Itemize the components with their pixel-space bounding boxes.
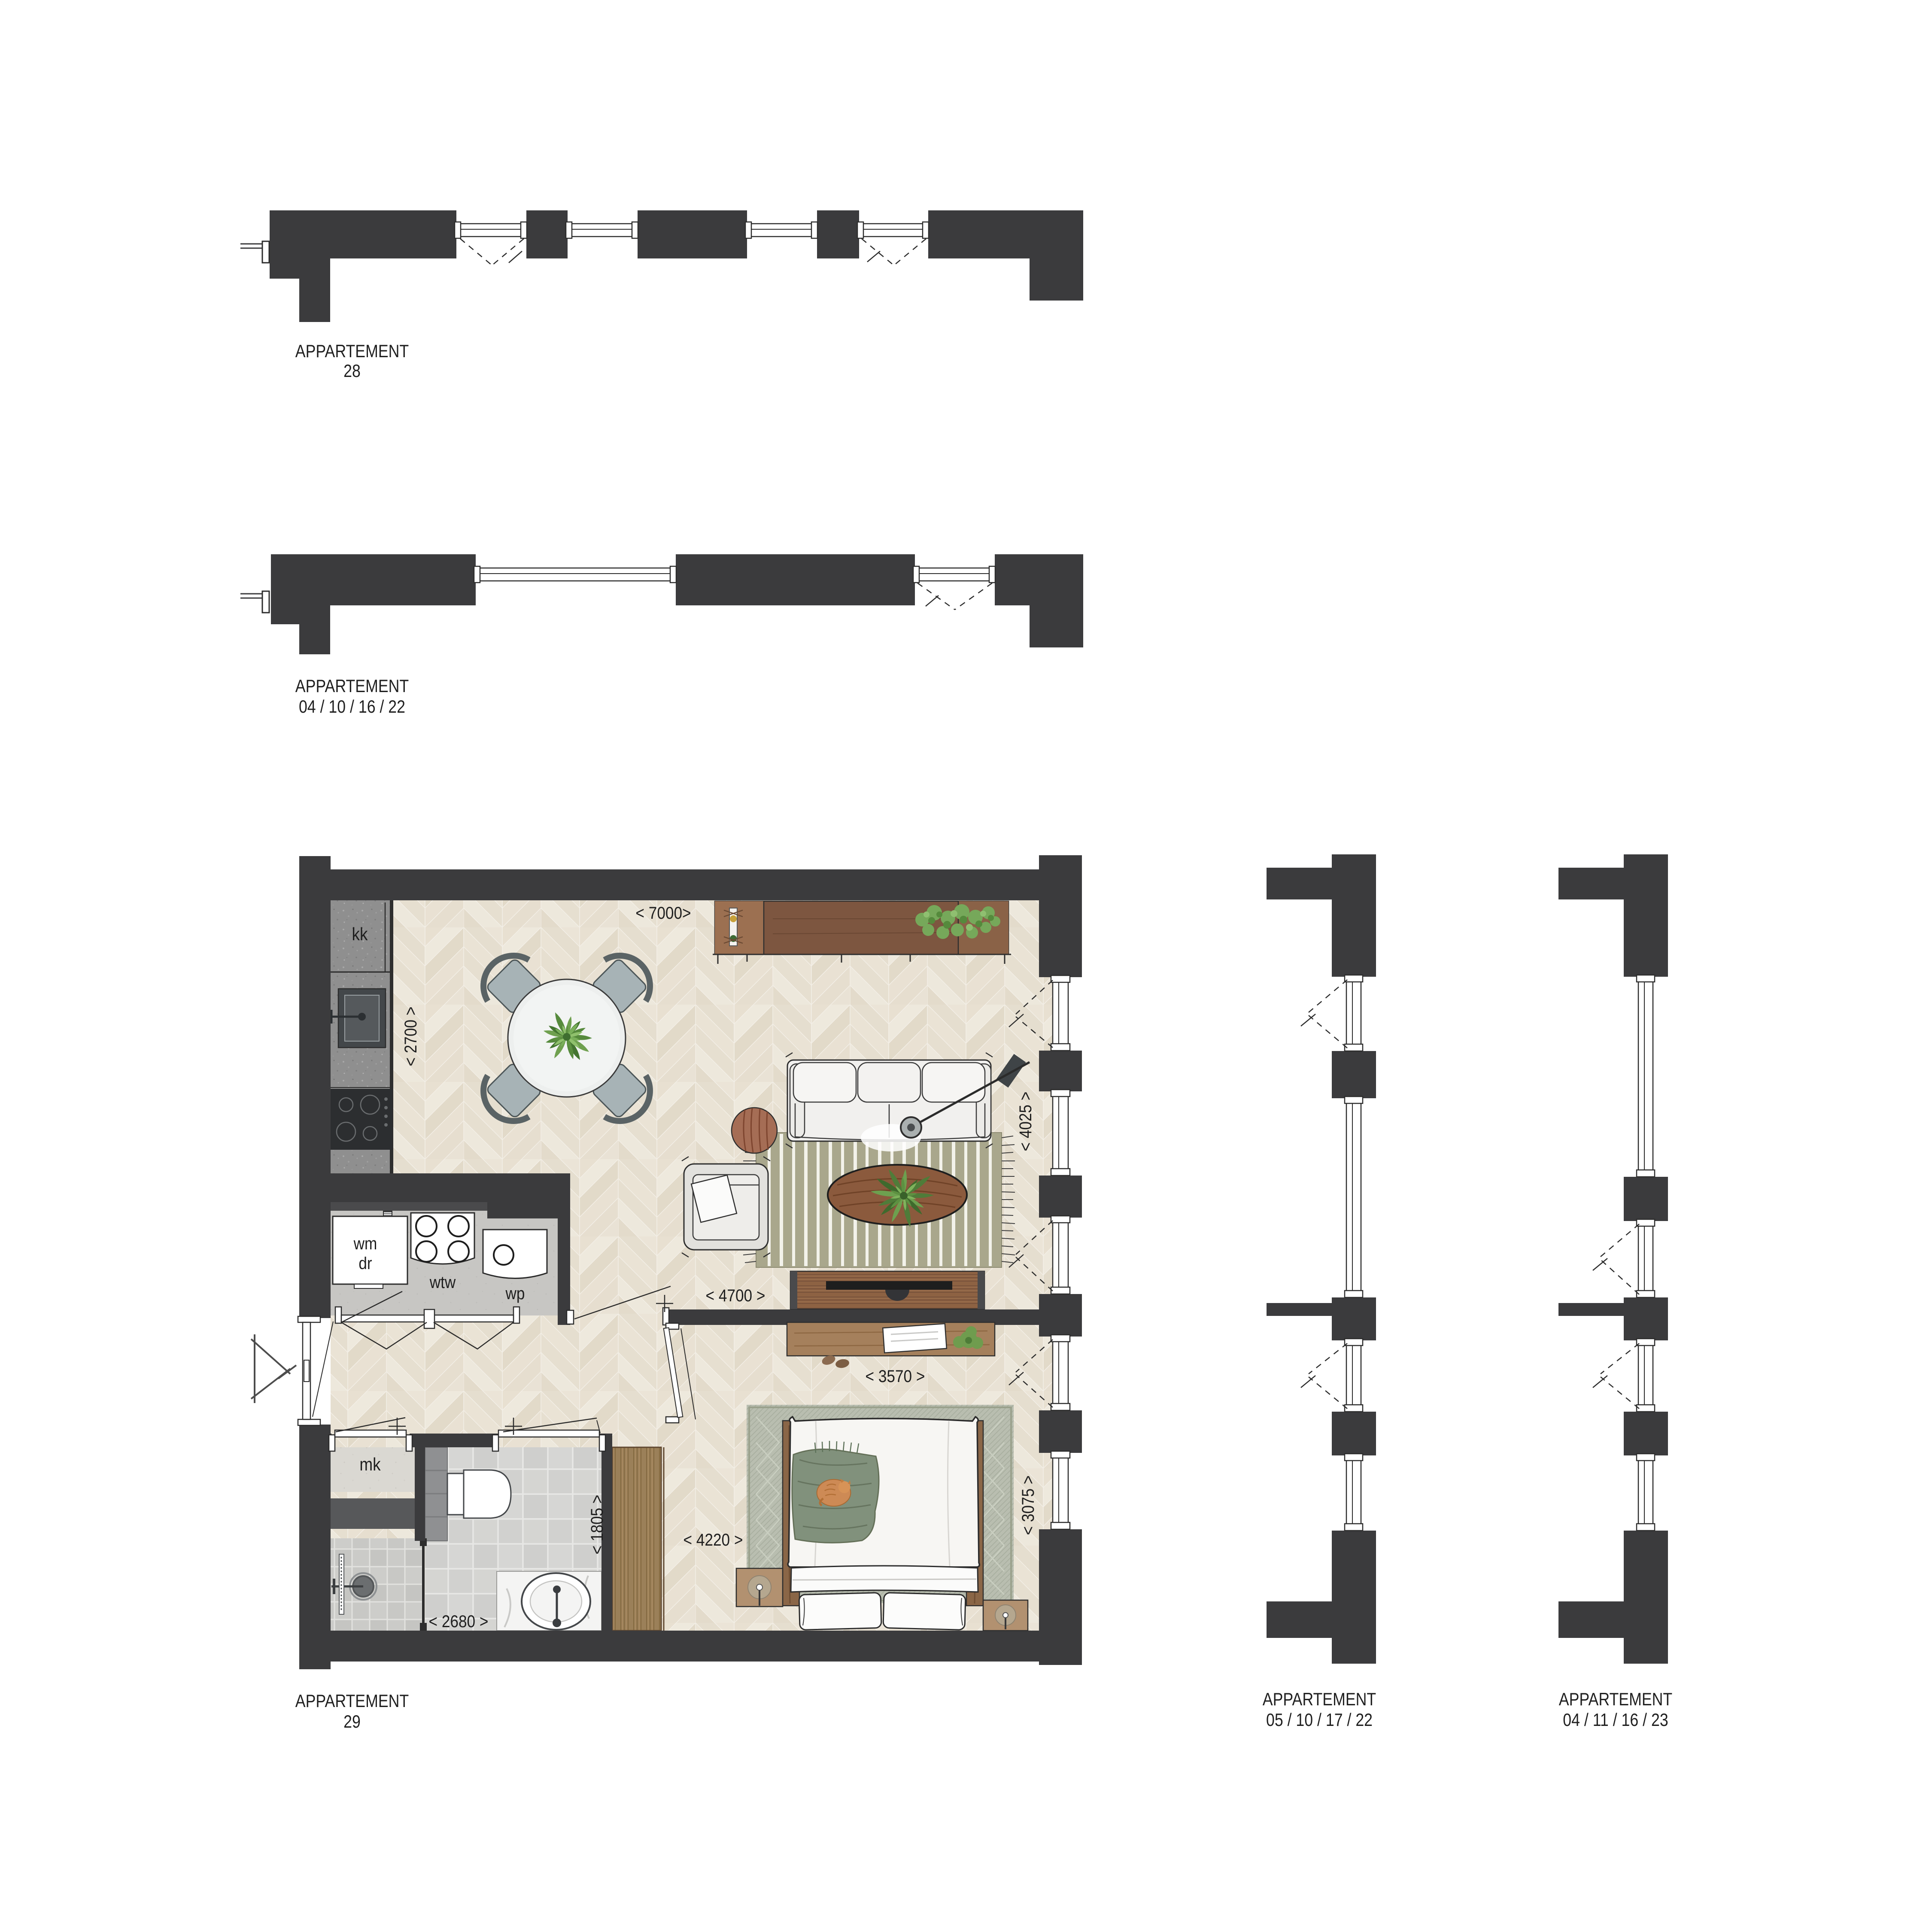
svg-text:APPARTEMENT: APPARTEMENT: [1263, 1689, 1376, 1709]
svg-text:wm: wm: [353, 1234, 377, 1253]
svg-text:< 7000>: < 7000>: [635, 903, 691, 923]
svg-text:< 1805 >: < 1805 >: [587, 1495, 607, 1555]
svg-text:mk: mk: [359, 1455, 380, 1475]
svg-text:04 / 11 / 16 / 23: 04 / 11 / 16 / 23: [1563, 1710, 1668, 1730]
svg-text:APPARTEMENT: APPARTEMENT: [295, 341, 409, 361]
svg-text:< 4220 >: < 4220 >: [683, 1530, 743, 1549]
svg-text:APPARTEMENT: APPARTEMENT: [295, 676, 409, 696]
svg-text:< 3075 >: < 3075 >: [1018, 1476, 1038, 1535]
svg-text:APPARTEMENT: APPARTEMENT: [295, 1691, 409, 1711]
svg-text:< 4700 >: < 4700 >: [706, 1286, 766, 1305]
svg-text:29: 29: [343, 1712, 361, 1732]
svg-text:wtw: wtw: [429, 1273, 456, 1292]
svg-text:kk: kk: [352, 924, 368, 945]
svg-text:< 2700 >: < 2700 >: [401, 1007, 420, 1066]
svg-text:< 4025 >: < 4025 >: [1016, 1092, 1035, 1151]
svg-text:< 2680 >: < 2680 >: [429, 1612, 489, 1631]
svg-text:APPARTEMENT: APPARTEMENT: [1559, 1689, 1672, 1709]
svg-text:28: 28: [343, 361, 361, 381]
svg-text:< 3570 >: < 3570 >: [866, 1367, 925, 1386]
svg-text:05 / 10 / 17 / 22: 05 / 10 / 17 / 22: [1266, 1710, 1373, 1730]
svg-text:04 / 10 / 16 / 22: 04 / 10 / 16 / 22: [299, 697, 405, 717]
svg-text:dr: dr: [358, 1254, 372, 1273]
svg-text:wp: wp: [505, 1284, 525, 1303]
